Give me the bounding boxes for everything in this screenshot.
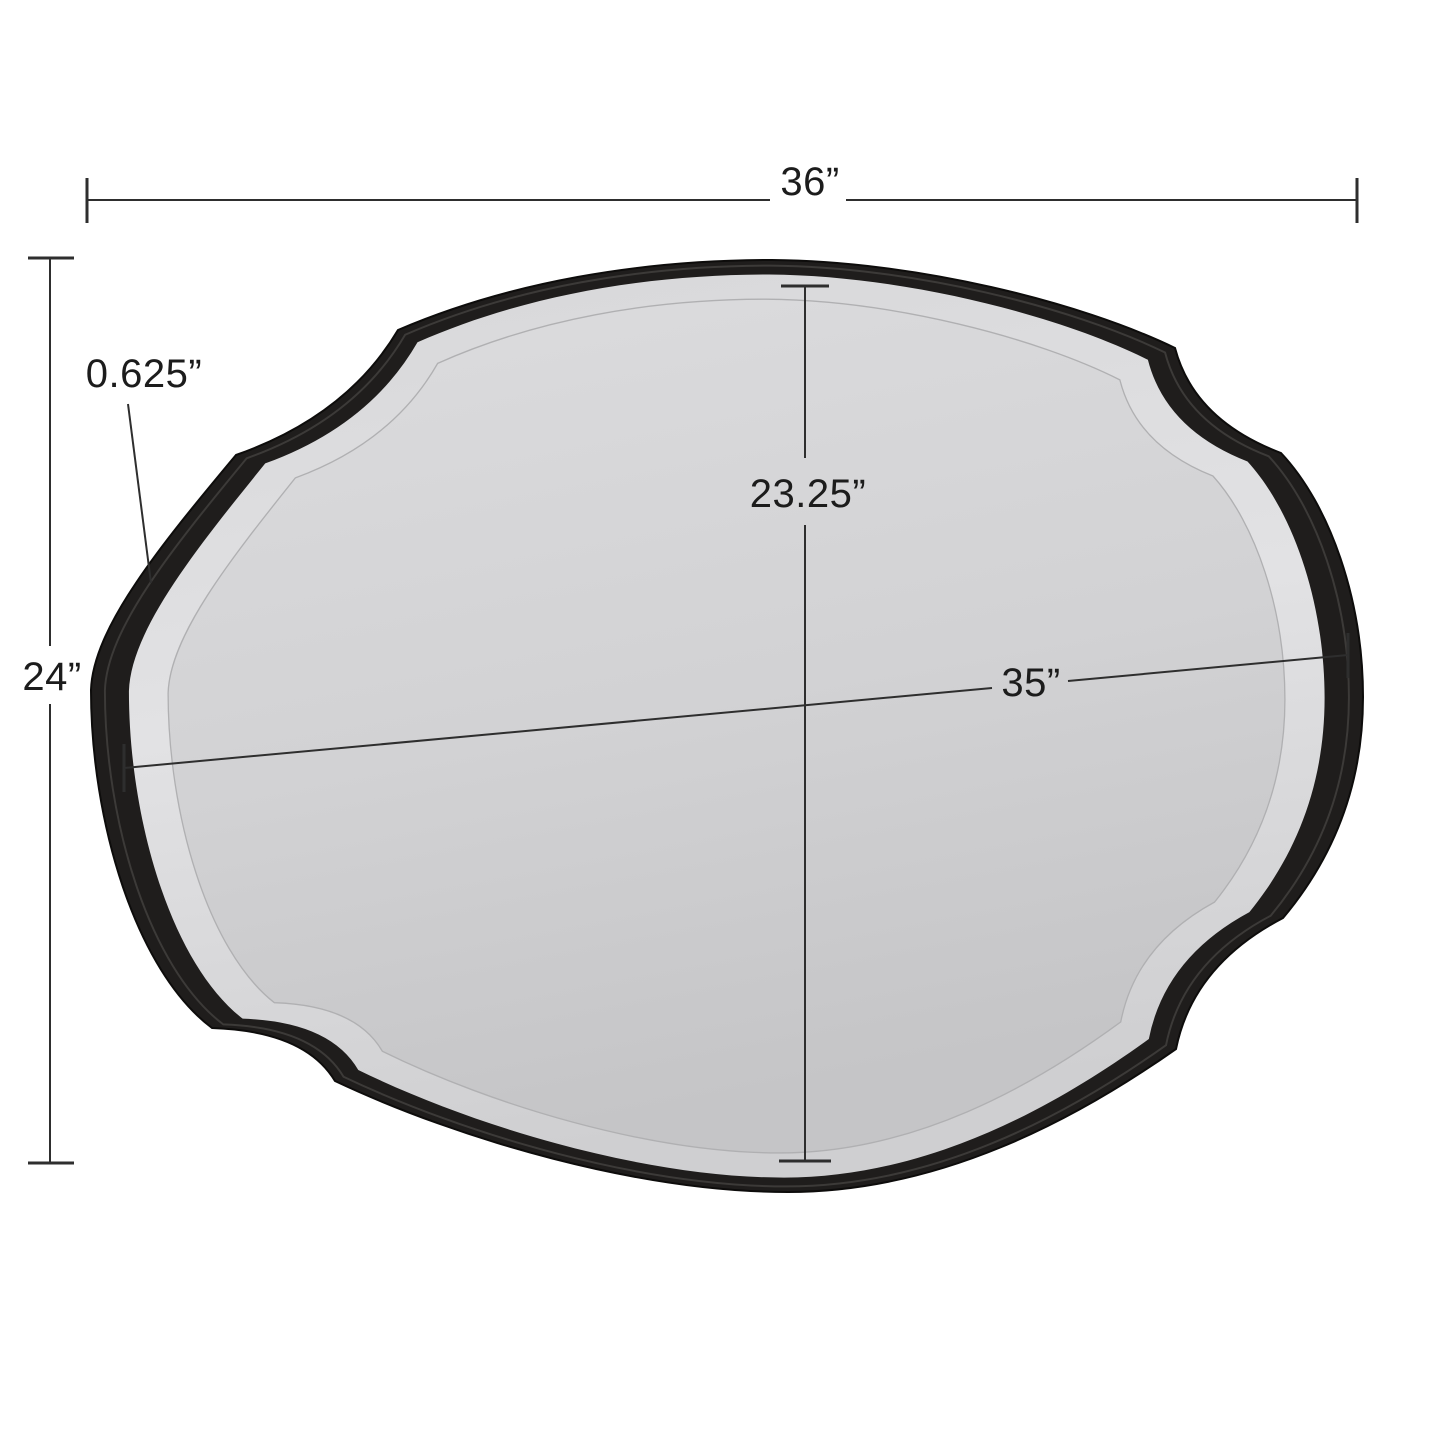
mirror: [91, 260, 1363, 1192]
mirror-dimension-diagram: 36” 24” 0.625” 23.25” 35”: [0, 0, 1445, 1445]
mirror-height-label: 23.25”: [750, 472, 866, 516]
overall-height-label: 24”: [22, 655, 81, 699]
mirror-width-label: 35”: [1001, 661, 1060, 705]
leader-line: [128, 404, 151, 583]
dimension-diagram-canvas: 36” 24” 0.625” 23.25” 35”: [0, 0, 1445, 1445]
dimension-frame-depth: [128, 404, 151, 583]
dimension-overall-width: [87, 178, 1357, 223]
dimension-overall-height: [28, 258, 74, 1163]
frame-depth-label: 0.625”: [86, 352, 202, 396]
overall-width-label: 36”: [780, 160, 839, 204]
